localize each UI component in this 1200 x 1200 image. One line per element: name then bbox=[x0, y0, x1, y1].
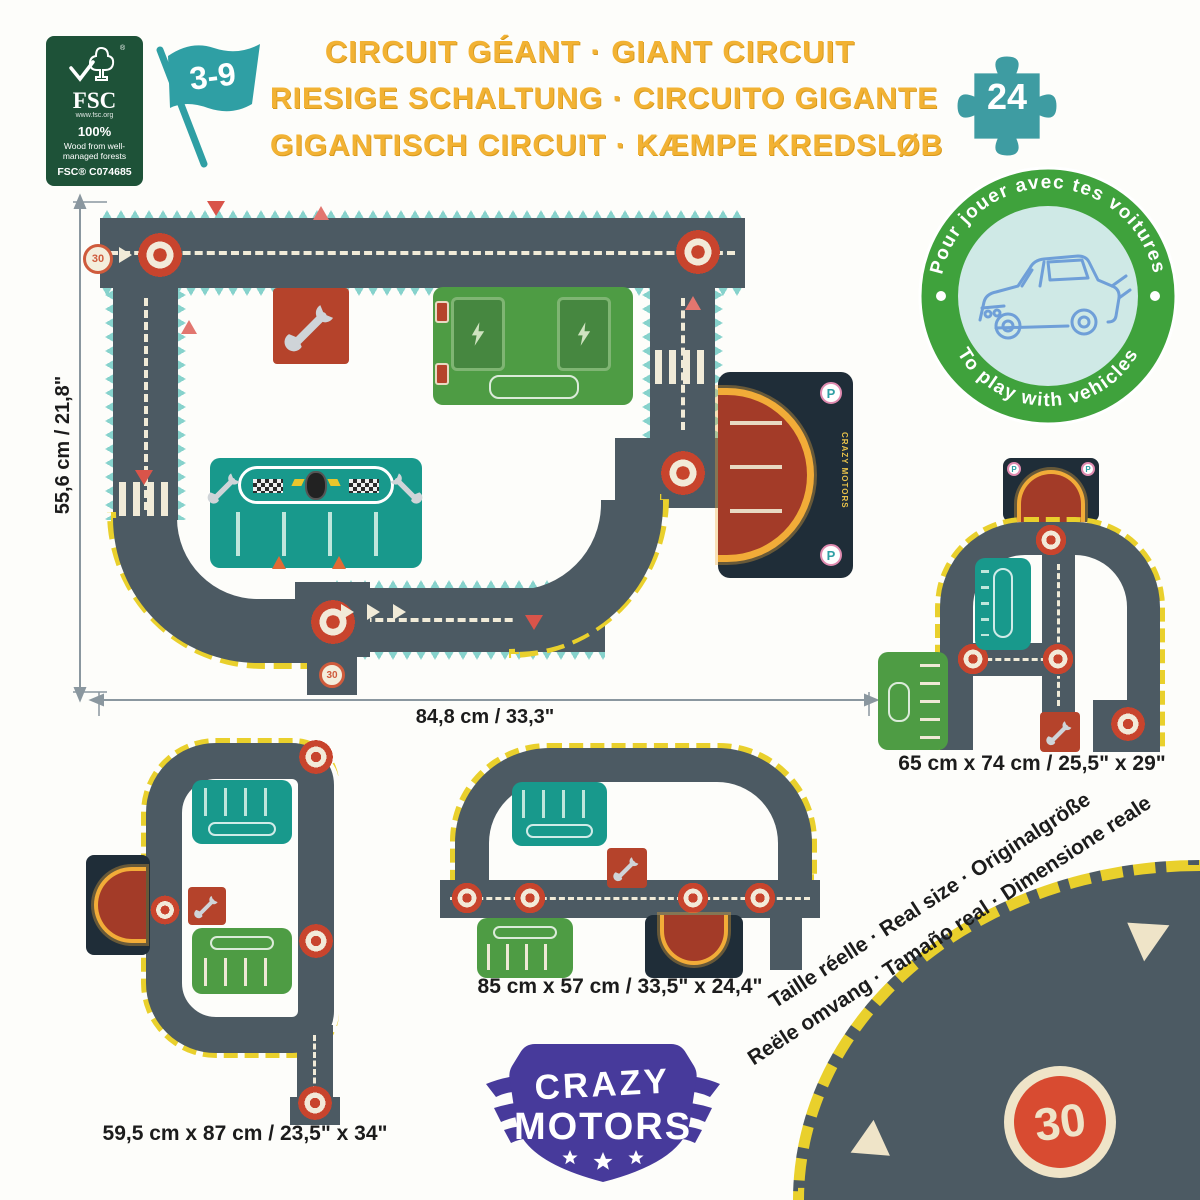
warning-triangle-icon bbox=[685, 296, 701, 310]
charge-board bbox=[433, 287, 633, 405]
page-title: CIRCUIT GÉANT · GIANT CIRCUIT bbox=[270, 28, 910, 75]
brand-name-line1: CRAZY bbox=[534, 1061, 671, 1107]
roundabout-icon bbox=[296, 921, 336, 961]
garage-arch bbox=[718, 388, 814, 562]
fsc-description: Wood from well-managed forests bbox=[46, 139, 143, 161]
garage-piece: P P bbox=[1003, 458, 1099, 522]
roundabout-icon bbox=[672, 226, 724, 278]
center-line bbox=[110, 251, 735, 255]
traffic-arrow-icon bbox=[393, 604, 406, 620]
circuit-65x74: P P bbox=[878, 438, 1193, 768]
wing-icon bbox=[291, 479, 304, 486]
speed-sign-icon: 30 bbox=[319, 662, 345, 688]
parking-sign-icon: P bbox=[1007, 462, 1021, 476]
roundabout-icon bbox=[449, 880, 485, 916]
parking-bays bbox=[487, 944, 563, 970]
wrench-tile bbox=[1040, 712, 1080, 752]
size-label-85x57: 85 cm x 57 cm / 33,5" x 24,4" bbox=[445, 975, 795, 999]
crosswalk-icon bbox=[655, 350, 711, 384]
parking-bays bbox=[204, 958, 280, 986]
wrench-icon bbox=[282, 297, 340, 355]
pit-banner bbox=[993, 568, 1013, 638]
main-height-label: 55,6 cm / 21,8" bbox=[52, 325, 75, 565]
charge-lane bbox=[489, 375, 579, 399]
pit-board bbox=[210, 458, 422, 568]
garage-piece bbox=[86, 855, 150, 955]
wrench-icon bbox=[193, 892, 221, 920]
fsc-license-code: FSC® C074685 bbox=[46, 166, 143, 178]
board-lane bbox=[888, 682, 910, 722]
road-stub bbox=[770, 918, 802, 970]
warning-triangle-icon bbox=[207, 201, 225, 216]
pit-board bbox=[975, 558, 1031, 650]
warning-triangle-icon bbox=[181, 320, 197, 334]
parking-bays bbox=[920, 664, 940, 740]
badge-dot-left bbox=[936, 291, 946, 301]
piece-count-label: 24 bbox=[948, 76, 1066, 118]
garage-arch bbox=[660, 915, 728, 965]
parking-bays bbox=[522, 790, 597, 818]
roundabout-icon bbox=[512, 880, 548, 916]
main-circuit: 30 30 bbox=[95, 200, 880, 700]
traffic-arrow-icon bbox=[1115, 905, 1170, 962]
board-lane bbox=[210, 936, 274, 950]
wrench-icon bbox=[1045, 717, 1075, 747]
badge-dot-right bbox=[1150, 291, 1160, 301]
charge-station bbox=[435, 301, 449, 323]
parking-bays bbox=[204, 788, 280, 816]
fsc-tree-icon: ® bbox=[65, 42, 125, 90]
road-segment bbox=[1042, 554, 1075, 716]
pit-banner bbox=[526, 824, 593, 838]
charge-station bbox=[435, 363, 449, 385]
pit-board bbox=[512, 782, 607, 846]
parking-bays bbox=[236, 512, 400, 556]
warning-triangle-icon bbox=[525, 615, 543, 630]
play-with-vehicles-badge: Pour jouer avec tes voitures To play wit… bbox=[916, 164, 1180, 428]
zigzag-edge bbox=[100, 210, 745, 218]
parking-bays bbox=[981, 570, 989, 636]
age-flag: 3-9 bbox=[146, 32, 278, 174]
title-block: CIRCUIT GÉANT · GIANT CIRCUIT RIESIGE SC… bbox=[270, 28, 910, 169]
pit-board bbox=[192, 780, 292, 844]
fsc-badge: ® FSC www.fsc.org 100% Wood from well-ma… bbox=[46, 36, 143, 186]
traffic-arrow-icon bbox=[851, 1120, 902, 1172]
zigzag-edge bbox=[330, 652, 605, 660]
speed-sign-icon: 30 bbox=[1004, 1066, 1116, 1178]
pit-banner bbox=[238, 466, 394, 504]
zigzag-edge bbox=[642, 288, 650, 440]
badge-inner bbox=[958, 206, 1138, 386]
traffic-arrow-icon bbox=[119, 247, 132, 263]
zigzag-edge bbox=[105, 288, 113, 520]
fsc-title: FSC bbox=[46, 90, 143, 112]
roundabout-icon bbox=[296, 737, 336, 777]
piece-count-puzzle: 24 bbox=[948, 50, 1066, 162]
garage-arch bbox=[94, 867, 146, 943]
roundabout-icon bbox=[295, 1083, 335, 1123]
speed-sign-value: 30 bbox=[1008, 1070, 1112, 1174]
roundabout-icon bbox=[148, 893, 182, 927]
speed-sign-icon: 30 bbox=[83, 244, 113, 274]
parking-sign-icon: P bbox=[820, 544, 842, 566]
garage-arch bbox=[1017, 470, 1085, 522]
brand-name-line2: MOTORS bbox=[514, 1106, 692, 1148]
charge-panel bbox=[451, 297, 505, 371]
garage-piece bbox=[645, 915, 743, 978]
svg-text:®: ® bbox=[120, 44, 125, 52]
road-segment-top bbox=[100, 218, 745, 288]
wing-icon bbox=[327, 479, 340, 486]
traffic-arrow-icon bbox=[341, 604, 354, 620]
circuit-85x57 bbox=[440, 740, 820, 985]
wrench-tile bbox=[188, 887, 226, 925]
roundabout-icon bbox=[1108, 704, 1148, 744]
roundabout-icon bbox=[1033, 522, 1069, 558]
parking-board bbox=[878, 652, 948, 750]
age-range-label: 3-9 bbox=[188, 55, 238, 96]
board-lane bbox=[493, 926, 557, 939]
center-line bbox=[1057, 564, 1060, 706]
roundabout-icon bbox=[1040, 641, 1076, 677]
parking-sign-icon: P bbox=[1081, 462, 1095, 476]
roundabout-icon bbox=[134, 229, 186, 281]
wrench-icon bbox=[612, 853, 642, 883]
page-title-de-es: RIESIGE SCHALTUNG · CIRCUITO GIGANTE bbox=[270, 75, 910, 122]
pit-banner bbox=[208, 822, 276, 836]
traffic-arrow-icon bbox=[367, 604, 380, 620]
fsc-percent: 100% bbox=[46, 124, 143, 139]
fsc-url: www.fsc.org bbox=[46, 112, 143, 119]
checkered-flag-icon bbox=[349, 479, 379, 493]
warning-triangle-icon bbox=[313, 206, 329, 220]
traffic-cone-icon bbox=[272, 556, 286, 569]
roundabout-icon bbox=[657, 447, 709, 499]
garage-piece: P P CRAZY MOTORS bbox=[718, 372, 853, 578]
wheel-icon bbox=[305, 471, 327, 500]
wrench-tile bbox=[273, 288, 349, 364]
checkered-flag-icon bbox=[253, 479, 283, 493]
brand-logo: CRAZY MOTORS bbox=[478, 1022, 728, 1192]
flag-icon: 3-9 bbox=[146, 32, 278, 174]
traffic-cone-icon bbox=[332, 556, 346, 569]
lightning-icon bbox=[570, 313, 598, 355]
wrench-icon bbox=[386, 468, 424, 506]
garage-brand-label: CRAZY MOTORS bbox=[840, 432, 849, 509]
parking-sign-icon: P bbox=[820, 382, 842, 404]
wrench-icon bbox=[206, 468, 244, 506]
garage-bays bbox=[730, 421, 782, 541]
page-title-nl-dk: GIGANTISCH CIRCUIT · KÆMPE KREDSLØB bbox=[270, 122, 910, 169]
parking-board bbox=[192, 928, 292, 994]
crosswalk-icon bbox=[119, 482, 173, 516]
lightning-icon bbox=[464, 313, 492, 355]
circuit-59x87 bbox=[88, 725, 408, 1125]
wrench-tile bbox=[607, 848, 647, 888]
roundabout-icon bbox=[675, 880, 711, 916]
parking-board bbox=[477, 918, 573, 978]
charge-panel bbox=[557, 297, 611, 371]
size-label-59x87: 59,5 cm x 87 cm / 23,5" x 34" bbox=[80, 1122, 410, 1146]
roundabout-icon bbox=[742, 880, 778, 916]
